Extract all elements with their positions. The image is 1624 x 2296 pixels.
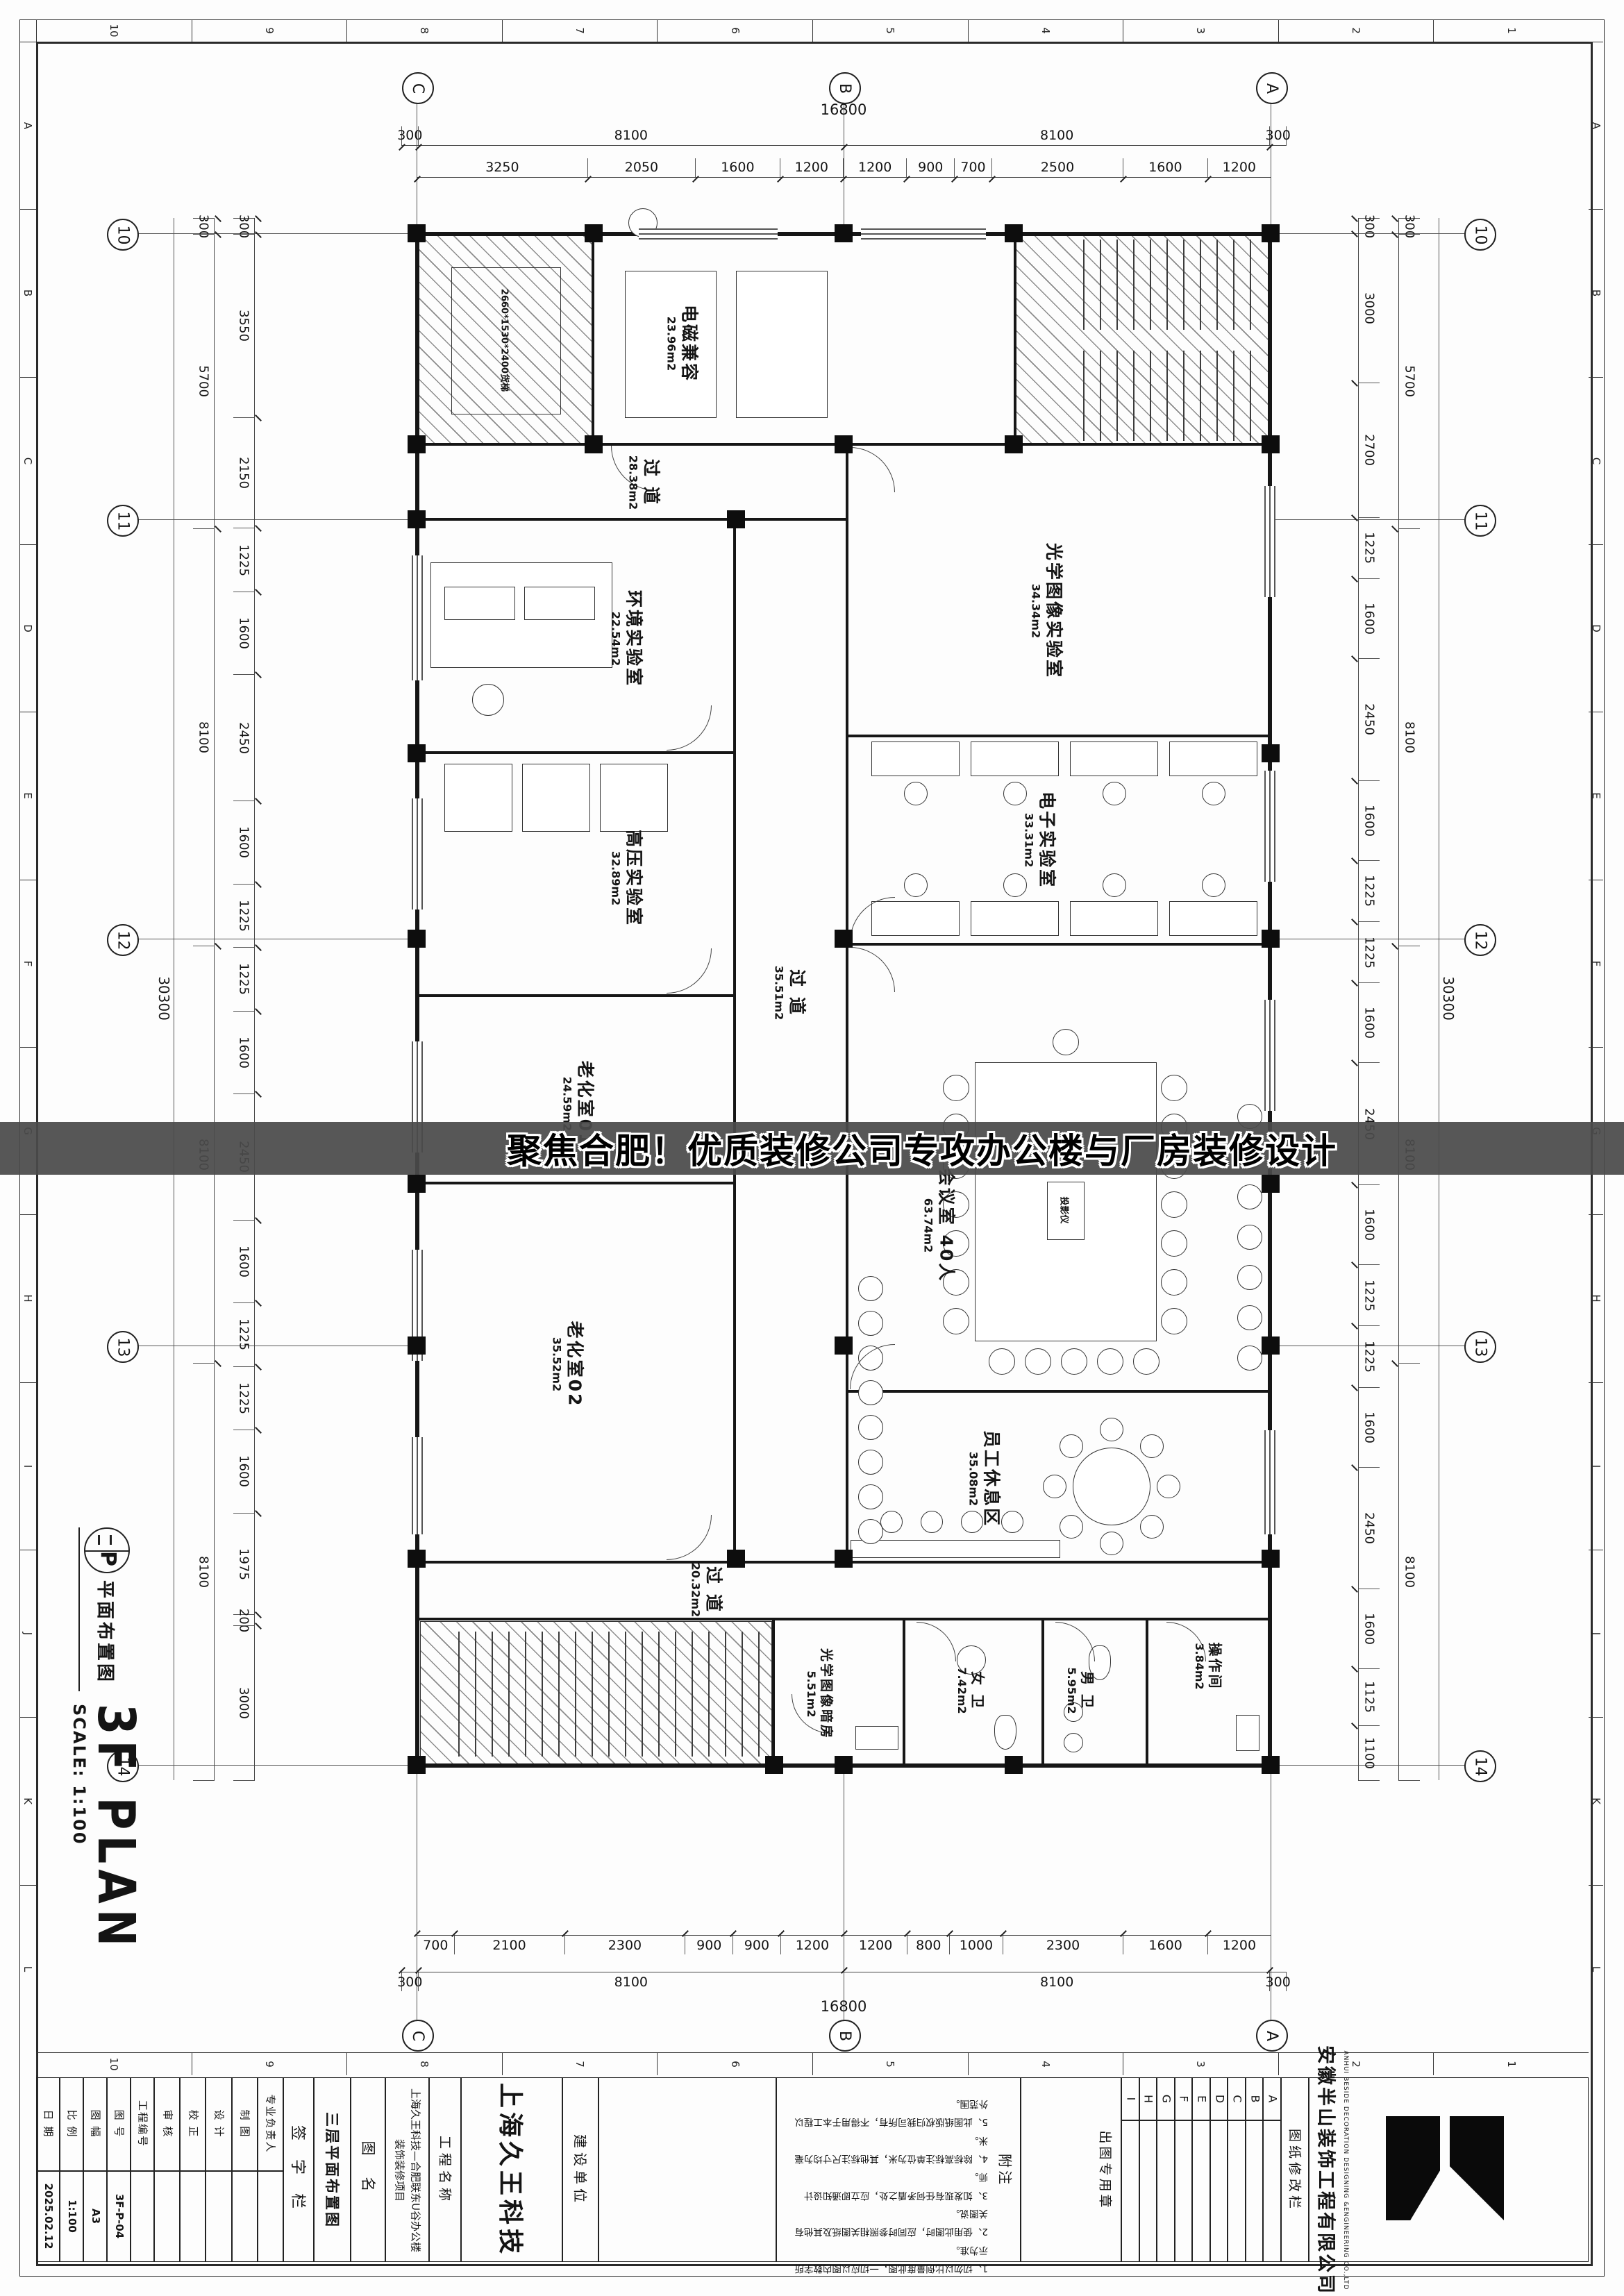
ruler-segment: 10: [36, 19, 192, 42]
dimension-segment: 900: [685, 1936, 733, 1954]
ruler-segment: L: [19, 1885, 36, 2052]
dimension-value: 1200: [858, 160, 891, 175]
ruler-segment: 5: [812, 19, 968, 42]
ruler-label: C: [22, 458, 34, 464]
dimension-segment: 8100: [418, 1972, 844, 1991]
env-equipment: [444, 587, 515, 620]
ruler-label: K: [1590, 1798, 1602, 1805]
ruler-segment: 7: [502, 19, 658, 42]
title-cell-value: 3F-P-04: [113, 2194, 126, 2238]
elec-desk: [971, 741, 1059, 776]
ruler-label: L: [1590, 1966, 1602, 1972]
revision-row-label: E: [1195, 2095, 1208, 2102]
dimension-segment: 1600: [1359, 1184, 1380, 1264]
conf-chair: [1161, 1269, 1187, 1296]
dimension-value: 1600: [1362, 1209, 1377, 1241]
ruler-label: 2: [1350, 27, 1362, 34]
drawing-name-value-box: 三层平面布置图: [314, 2077, 351, 2262]
ruler-label: E: [22, 793, 34, 799]
column: [1262, 1175, 1280, 1193]
dimension-value: 2450: [1362, 1512, 1377, 1544]
drawing-name-value: 三层平面布置图: [322, 2112, 343, 2229]
drawing-name-label-box: 图 名: [351, 2077, 385, 2262]
conf-chair: [1161, 1308, 1187, 1334]
emc-table: [736, 271, 828, 418]
dimension-segment: 1600: [1359, 1387, 1380, 1467]
project-label: 工程名称: [437, 2136, 455, 2205]
grid-bubble-row-11: 11: [107, 505, 139, 537]
room-label-aging2: 老化室0235.52m2: [551, 1321, 589, 1408]
wall-left: [415, 232, 419, 1768]
ruler-segment: 6: [657, 19, 812, 42]
grid-bubble-col-A: A: [1256, 72, 1288, 104]
project-label-box: 工程名称: [429, 2077, 461, 2262]
ruler-label: 3: [1194, 2061, 1207, 2068]
room-label-op-room: 操作间3.84m2: [1193, 1643, 1226, 1691]
dimension-value: 800: [916, 1938, 941, 1953]
ruler-segment: 4: [968, 19, 1123, 42]
ruler-label: 9: [263, 27, 276, 34]
conf-chair: [1025, 1348, 1051, 1375]
elec-desk: [1070, 901, 1158, 936]
wall-dark-wc: [903, 1618, 905, 1765]
column: [1262, 930, 1280, 948]
revision-label-box: 图纸修改栏: [1281, 2077, 1309, 2262]
grid-bubble-label: A: [1264, 83, 1281, 93]
ruler-segment: A: [19, 42, 36, 209]
column: [727, 1550, 745, 1568]
grid-stem: [136, 233, 415, 234]
room-label-meeting: 会议室 40人63.74m2: [922, 1168, 960, 1283]
wall-chair: [1237, 1305, 1262, 1330]
ruler-segment: B: [19, 209, 36, 376]
dimension-value: 1600: [237, 1037, 251, 1069]
dim-chain-right-detail: 3003000270012251600245016001225122516002…: [1358, 218, 1380, 1781]
dimension-segment: 2450: [1359, 1467, 1380, 1589]
rest-chair: [1157, 1475, 1180, 1498]
note-line: 2、使用此图时，应同时参照相关图纸及其他有关图说。: [787, 2204, 988, 2241]
dimension-segment: 2450: [233, 674, 254, 801]
dimension-segment: 1600: [1359, 578, 1380, 658]
watermark-banner: 聚焦合肥！优质装修公司专攻办公楼与厂房装修设计: [0, 1122, 1624, 1175]
conf-chair: [943, 1308, 969, 1334]
dim-bottom-overall: 16800: [821, 1998, 867, 2015]
dimension-segment: 700: [954, 158, 991, 177]
dimension-value: 2150: [237, 457, 251, 489]
dimension-segment: 8100: [418, 126, 844, 145]
dimension-segment: 1200: [1207, 1936, 1271, 1954]
column: [835, 1336, 853, 1355]
dimension-segment: 300: [401, 1972, 418, 1991]
dimension-value: 1200: [859, 1938, 892, 1953]
column: [408, 1756, 426, 1774]
dimension-segment: 1100: [1359, 1725, 1380, 1780]
ruler-label: 4: [1039, 27, 1052, 34]
window: [639, 228, 778, 240]
grid-bubble-row-11: 11: [1464, 505, 1496, 537]
grid-bubble-row-13: 13: [1464, 1331, 1496, 1363]
revision-row-label: B: [1248, 2095, 1262, 2103]
grid-bubble-label: C: [410, 83, 427, 93]
window: [412, 1437, 423, 1534]
room-label-env-lab: 环境实验室22.54m2: [610, 590, 648, 687]
dimension-segment: 300: [1399, 218, 1420, 234]
dimension-value: 1600: [237, 827, 251, 859]
dimension-value: 2300: [1046, 1938, 1080, 1953]
dimension-segment: 1225: [1359, 517, 1380, 578]
ruler-label: 7: [574, 27, 586, 34]
ruler-label: D: [22, 624, 34, 632]
title-block-cell: 图 号3F-P-04: [107, 2077, 131, 2262]
dimension-value: 1225: [1362, 1280, 1377, 1312]
wall-env-hv: [415, 751, 736, 754]
wall-wcf-wcm: [1041, 1618, 1044, 1765]
dim-chain-right-sections: 3005700810081008100: [1398, 218, 1420, 1781]
title-cell-label: 制 图: [238, 2110, 253, 2138]
ruler-segment: 2: [1278, 2053, 1434, 2075]
column: [1262, 224, 1280, 242]
plan-symbol-icon: P: [84, 1527, 130, 1573]
dimension-value: 1125: [1362, 1682, 1377, 1713]
ruler-segment: 6: [657, 2053, 812, 2075]
conf-chair: [989, 1348, 1015, 1375]
column: [1262, 435, 1280, 453]
column: [835, 1756, 853, 1774]
dimension-value: 700: [960, 160, 985, 175]
elec-desk: [1169, 901, 1257, 936]
dimension-segment: 1225: [233, 1302, 254, 1366]
dim-left-overall: 30300: [156, 976, 172, 1021]
ruler-label: A: [22, 122, 34, 129]
ruler-segment: C: [1589, 377, 1603, 544]
wall-stair-west: [1014, 232, 1016, 444]
wall-chair: [858, 1276, 883, 1301]
title-block-cell: 制 图: [232, 2077, 258, 2262]
grid-stem: [136, 939, 415, 939]
dimension-segment: 300: [1269, 126, 1286, 145]
revision-row-label: G: [1160, 2095, 1173, 2103]
dim-right-overall-line: [1439, 218, 1439, 1780]
ruler-label: 10: [108, 24, 120, 37]
dimension-segment: 5700: [193, 234, 214, 528]
title-cell-value: 1:100: [66, 2199, 78, 2233]
rest-chair: [1043, 1475, 1066, 1498]
revision-row-label: H: [1142, 2095, 1155, 2103]
dimension-value: 1600: [1362, 805, 1377, 837]
ruler-segment: H: [1589, 1214, 1603, 1382]
note-line: 4、除标高标注单位为米，其他标注尺寸均为毫米。: [787, 2131, 988, 2168]
title-block-cell: 校 正: [180, 2077, 206, 2262]
dimension-segment: 700: [417, 1936, 454, 1954]
grid-bubble-label: 12: [115, 930, 132, 950]
window: [1264, 771, 1275, 882]
dimension-value: 900: [918, 160, 943, 175]
wall-chair: [858, 1415, 883, 1440]
dimension-value: 8100: [1403, 1556, 1417, 1588]
grid-bubble-label: A: [1264, 2030, 1281, 2041]
note-line: 5、此图纸版权归我司所有，不得用于本工程以外范围。: [787, 2095, 988, 2131]
dimension-segment: 1600: [1123, 1936, 1207, 1954]
conf-chair: [1161, 1191, 1187, 1218]
dimension-segment: 1600: [233, 801, 254, 883]
ruler-label: H: [22, 1295, 34, 1302]
ruler-segment: 4: [968, 2053, 1123, 2075]
dimension-value: 1600: [1148, 1938, 1182, 1953]
wall-optical-elec: [846, 735, 1272, 737]
elec-desk: [1169, 741, 1257, 776]
ruler-label: 3: [1194, 27, 1207, 34]
client-name-value: 上海久王科技: [494, 2083, 530, 2258]
stair-treads-bottom: [458, 1632, 764, 1757]
rest-chair: [1100, 1418, 1123, 1441]
revision-cell: A: [1263, 2077, 1281, 2262]
dimension-segment: 8100: [193, 528, 214, 946]
ruler-segment: 2: [1278, 19, 1434, 42]
ruler-segment: E: [1589, 712, 1603, 879]
ruler-segment: K: [1589, 1717, 1603, 1884]
column: [727, 510, 745, 528]
ruler-label: F: [1590, 960, 1602, 966]
dim-left-overall-line: [174, 218, 174, 1780]
grid-bubble-row-13: 13: [107, 1331, 139, 1363]
grid-bubble-col-C: C: [402, 72, 434, 104]
dim-chain-left-detail: 3003550215012251600245016001225122516002…: [233, 218, 255, 1781]
column: [585, 435, 603, 453]
ruler-segment: 5: [812, 2053, 968, 2075]
rest-counter: [851, 1540, 1060, 1558]
dimension-segment: 2100: [454, 1936, 564, 1954]
dimension-segment: 1225: [1359, 860, 1380, 921]
dimension-value: 1200: [795, 160, 828, 175]
wall-elec-meeting: [846, 943, 1272, 946]
ruler-segment: I: [19, 1382, 36, 1550]
ruler-segment: 1: [1433, 2053, 1589, 2075]
grid-bubble-col-B: B: [829, 72, 861, 104]
plan-title-text: 3F PLAN: [88, 1704, 142, 1952]
grid-bubble-col-B: B: [829, 2020, 861, 2052]
revision-row-label: F: [1178, 2095, 1191, 2102]
dimension-segment: 2300: [1003, 1936, 1123, 1954]
ruler-segment: B: [1589, 209, 1603, 376]
dimension-value: 1600: [237, 1246, 251, 1277]
dimension-segment: 2300: [564, 1936, 685, 1954]
column: [408, 1336, 426, 1355]
dimension-segment: 3250: [417, 158, 587, 177]
hv-cabinet: [444, 764, 512, 832]
note-line: 1、切勿以比例量度此图，一切应以图内数字所示为准。: [787, 2241, 988, 2278]
ruler-segment: C: [19, 377, 36, 544]
revision-row-label: C: [1231, 2095, 1244, 2102]
dimension-segment: 1200: [843, 158, 906, 177]
rest-stool: [921, 1511, 943, 1533]
grid-bubble-label: 11: [115, 511, 132, 530]
title-cell-label: 校 正: [186, 2110, 201, 2138]
ruler-segment: F: [1589, 880, 1603, 1047]
title-block-cell: 图 幅A3: [83, 2077, 107, 2262]
elec-desk: [871, 741, 960, 776]
grid-stem: [136, 1346, 415, 1346]
room-label-optical-lab: 光学图像实验室34.34m2: [1030, 543, 1068, 679]
ruler-label: J: [1590, 1632, 1602, 1635]
dimension-value: 1225: [1362, 875, 1377, 907]
grid-bubble-col-A: A: [1256, 2020, 1288, 2052]
ruler-segment: H: [19, 1214, 36, 1382]
grid-bubble-row-14: 14: [1464, 1750, 1496, 1782]
ruler-segment: D: [1589, 544, 1603, 712]
room-label-wc-male: 男 卫5.95m2: [1065, 1667, 1098, 1713]
hv-cabinet: [522, 764, 590, 832]
env-chair: [472, 684, 504, 716]
ruler-label: K: [22, 1798, 34, 1805]
wall-stairb-east: [772, 1618, 775, 1765]
ruler-label: 8: [418, 27, 430, 34]
grid-bubble-row-10: 10: [1464, 219, 1496, 251]
client-label: 建设单位: [571, 2134, 592, 2206]
dim-chain-left-sections: 3005700810081008100: [193, 218, 215, 1781]
stamp-box: 出图专用章: [1021, 2077, 1121, 2262]
rest-chair: [1140, 1434, 1164, 1458]
dimension-segment: 2700: [1359, 383, 1380, 517]
wall-wcm-op: [1146, 1618, 1148, 1765]
dimension-segment: 1225: [233, 1366, 254, 1430]
conf-chair: [1061, 1348, 1087, 1375]
title-cell-label: 图 号: [112, 2110, 127, 2138]
dimension-value: 900: [696, 1938, 721, 1953]
dimension-segment: 1225: [1359, 921, 1380, 982]
dimension-segment: 1225: [233, 528, 254, 592]
wall-elevator-east: [592, 232, 594, 444]
title-block-cell: 工程编号: [131, 2077, 154, 2262]
column: [408, 1550, 426, 1568]
dimension-value: 1225: [1362, 937, 1377, 969]
column: [1262, 1336, 1280, 1355]
dimension-value: 1000: [960, 1938, 993, 1953]
ruler-label: 1: [1505, 27, 1518, 34]
border-ruler-right: ABCDEFGHIJKL: [1589, 42, 1603, 2052]
dimension-segment: 1600: [695, 158, 780, 177]
dimension-segment: 900: [733, 1936, 780, 1954]
ruler-segment: 10: [36, 2053, 192, 2075]
window: [861, 228, 986, 240]
grid-bubble-col-C: C: [402, 2020, 434, 2052]
title-cell-value: A3: [90, 2209, 102, 2224]
dimension-segment: 2500: [991, 158, 1123, 177]
dimension-value: 1225: [237, 963, 251, 995]
dimension-value: 3000: [237, 1687, 251, 1719]
dimension-value: 1975: [237, 1548, 251, 1580]
dimension-value: 1600: [1362, 1007, 1377, 1039]
dimension-segment: 2450: [1359, 658, 1380, 780]
dimension-segment: 1200: [1207, 158, 1271, 177]
dimension-value: 8100: [614, 128, 648, 143]
dimension-segment: 200: [233, 1614, 254, 1625]
wall-chair: [1237, 1225, 1262, 1250]
grid-bubble-label: B: [837, 83, 854, 93]
revision-row-label: D: [1213, 2095, 1226, 2103]
dimension-segment: 1000: [949, 1936, 1002, 1954]
column: [765, 1756, 783, 1774]
ruler-label: F: [22, 960, 34, 966]
elec-chair: [904, 873, 928, 897]
dimension-segment: 5700: [1399, 234, 1420, 528]
round-table: [1073, 1448, 1150, 1525]
title-block-cell: 审 核: [154, 2077, 180, 2262]
sign-column-box: 签 字 栏: [283, 2077, 314, 2262]
elec-chair: [1103, 782, 1126, 805]
window: [1264, 486, 1275, 597]
room-label-hv-lab: 高压实验室32.89m2: [610, 830, 648, 927]
wall-labs-east: [733, 518, 736, 1561]
title-block-cell: 设 计: [206, 2077, 231, 2262]
client-label-box: 建设单位: [562, 2077, 598, 2262]
dimension-segment: 1200: [780, 1936, 844, 1954]
dimension-segment: 1600: [1359, 982, 1380, 1062]
dimension-value: 1225: [237, 900, 251, 932]
dimension-value: 1600: [721, 160, 754, 175]
hv-cabinet: [600, 764, 668, 832]
ruler-segment: 1: [1433, 19, 1589, 42]
conf-chair: [1161, 1230, 1187, 1257]
room-label-rest-area: 员工休息区35.08m2: [967, 1430, 1005, 1527]
dimension-segment: 800: [907, 1936, 949, 1954]
column: [408, 744, 426, 762]
dimension-value: 2050: [625, 160, 658, 175]
ruler-segment: A: [1589, 42, 1603, 209]
spare-box: [598, 2077, 776, 2262]
title-cell-label: 审 核: [160, 2110, 175, 2138]
op-sink: [1236, 1715, 1259, 1751]
notes-text: 1、切勿以比例量度此图，一切应以图内数字所示为准。2、使用此图时，应同时参照相关…: [787, 2095, 988, 2277]
window: [1264, 1000, 1275, 1111]
dimension-value: 5700: [1403, 365, 1417, 397]
ruler-segment: 8: [346, 2053, 502, 2075]
drawing-name-label: 图 名: [358, 2141, 379, 2200]
ruler-label: I: [22, 1465, 34, 1468]
dimension-segment: 1225: [233, 884, 254, 948]
grid-bubble-row-12: 12: [107, 924, 139, 956]
ruler-label: H: [1590, 1295, 1602, 1302]
grid-bubble-label: 14: [1472, 1757, 1489, 1776]
column: [835, 930, 853, 948]
conf-chair: [1161, 1075, 1187, 1101]
ruler-segment: I: [1589, 1382, 1603, 1550]
column: [408, 510, 426, 528]
dimension-segment: 900: [906, 158, 954, 177]
title-block-cell: 专业负责人: [258, 2077, 283, 2262]
ruler-label: 4: [1039, 2061, 1052, 2068]
revision-row-label: A: [1266, 2095, 1280, 2103]
grid-bubble-row-10: 10: [107, 219, 139, 251]
stamp-label: 出图专用章: [1097, 2130, 1116, 2210]
column: [1005, 1756, 1023, 1774]
grid-bubble-label: C: [410, 2030, 427, 2041]
ruler-label: I: [1590, 1465, 1602, 1468]
dimension-value: 2700: [1362, 435, 1377, 467]
column: [1005, 224, 1023, 242]
drawing-sheet: 10987654321 10987654321 ABCDEFGHIJKL ABC…: [0, 0, 1624, 2296]
border-ruler-top: 10987654321: [36, 19, 1589, 42]
dimension-segment: 1975: [233, 1513, 254, 1615]
notes-box: 1、切勿以比例量度此图，一切应以图内数字所示为准。2、使用此图时，应同时参照相关…: [776, 2077, 1021, 2262]
company-name-en: ANHUI BESIDE DECORATION DESIGNING &ENGIN…: [1342, 2050, 1349, 2290]
company-logo-icon: [1386, 2116, 1504, 2220]
dimension-segment: 1125: [1359, 1668, 1380, 1725]
column: [1262, 744, 1280, 762]
column: [835, 224, 853, 242]
column: [1262, 1756, 1280, 1774]
revision-row-label: I: [1124, 2097, 1137, 2101]
grid-bubble-label: 10: [115, 225, 132, 244]
